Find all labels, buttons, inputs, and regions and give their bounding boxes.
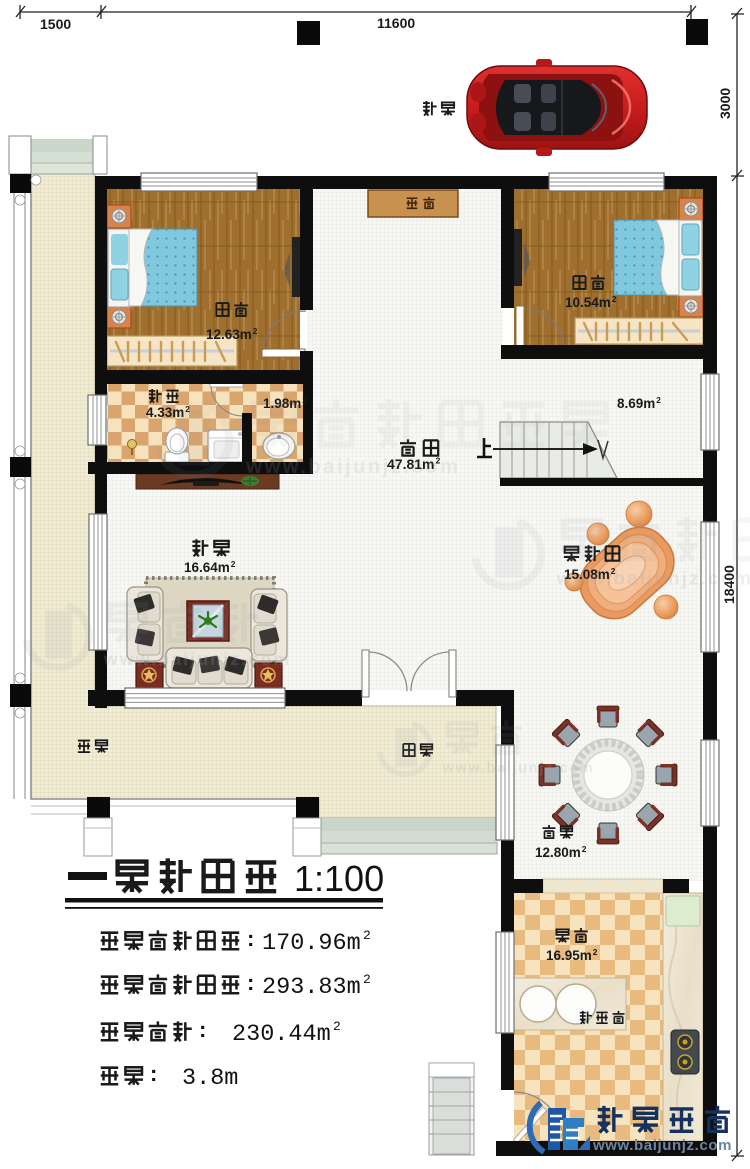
svg-text:www.baijunjz.com: www.baijunjz.com: [245, 456, 460, 478]
svg-text:2: 2: [363, 972, 371, 987]
svg-text:4.33m: 4.33m: [146, 405, 184, 420]
svg-text:11600: 11600: [377, 15, 415, 31]
svg-text::: :: [150, 1061, 157, 1086]
svg-text:8.69m: 8.69m: [617, 396, 655, 411]
svg-text:2: 2: [302, 395, 307, 405]
svg-text:www.baijunjz.com: www.baijunjz.com: [592, 1137, 732, 1154]
svg-text:2: 2: [656, 395, 661, 405]
svg-text:2: 2: [582, 844, 587, 854]
svg-text:230.44m: 230.44m: [232, 1021, 331, 1048]
svg-text:2: 2: [253, 326, 258, 336]
svg-text:2: 2: [363, 928, 371, 943]
svg-text:16.64m: 16.64m: [184, 560, 230, 575]
svg-text:170.96m: 170.96m: [262, 930, 361, 957]
svg-text:293.83m: 293.83m: [262, 974, 361, 1001]
svg-text:10.54m: 10.54m: [565, 295, 611, 310]
svg-text:2: 2: [612, 294, 617, 304]
svg-text:www.baijunjz.com: www.baijunjz.com: [103, 649, 292, 669]
svg-text::: :: [247, 970, 254, 995]
svg-text:2: 2: [231, 559, 236, 569]
svg-text::: :: [247, 926, 254, 951]
svg-text:www.baijunjz.com: www.baijunjz.com: [556, 567, 750, 588]
svg-text:2: 2: [593, 947, 598, 957]
svg-text:12.80m: 12.80m: [535, 845, 581, 860]
svg-text:2: 2: [333, 1019, 341, 1034]
svg-text:3000: 3000: [717, 88, 733, 119]
svg-text:www.baijunjz.com: www.baijunjz.com: [442, 760, 595, 776]
svg-text:16.95m: 16.95m: [546, 948, 592, 963]
svg-text::: :: [199, 1017, 206, 1042]
svg-text:1500: 1500: [40, 16, 71, 32]
svg-text:12.63m: 12.63m: [206, 327, 252, 342]
svg-text:1:100: 1:100: [294, 858, 384, 899]
svg-text:3.8m: 3.8m: [182, 1065, 238, 1092]
